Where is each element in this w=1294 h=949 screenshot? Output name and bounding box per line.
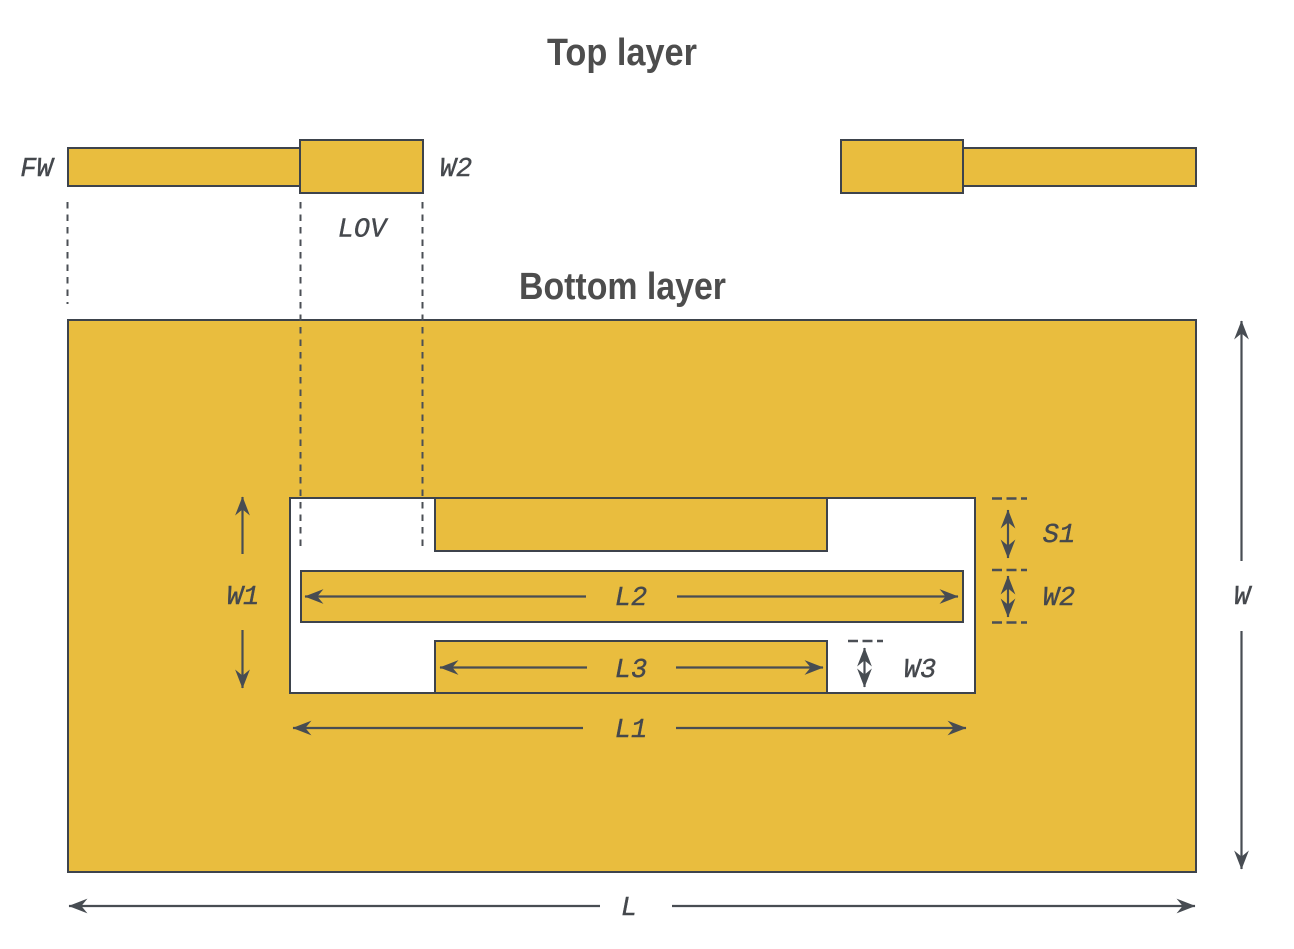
svg-text:S1: S1 [1043,521,1075,551]
svg-text:W2: W2 [440,155,472,185]
svg-text:L2: L2 [615,584,647,614]
svg-text:Top layer: Top layer [547,32,697,74]
svg-text:W1: W1 [227,583,259,613]
svg-text:Bottom layer: Bottom layer [519,266,726,308]
svg-text:W: W [1234,583,1253,613]
svg-text:W3: W3 [904,656,936,686]
svg-text:L1: L1 [615,716,647,746]
svg-text:LOV: LOV [338,216,389,246]
svg-text:L3: L3 [615,656,647,686]
svg-text:W2: W2 [1043,584,1075,614]
svg-text:L: L [621,894,637,924]
svg-text:FW: FW [20,155,55,185]
